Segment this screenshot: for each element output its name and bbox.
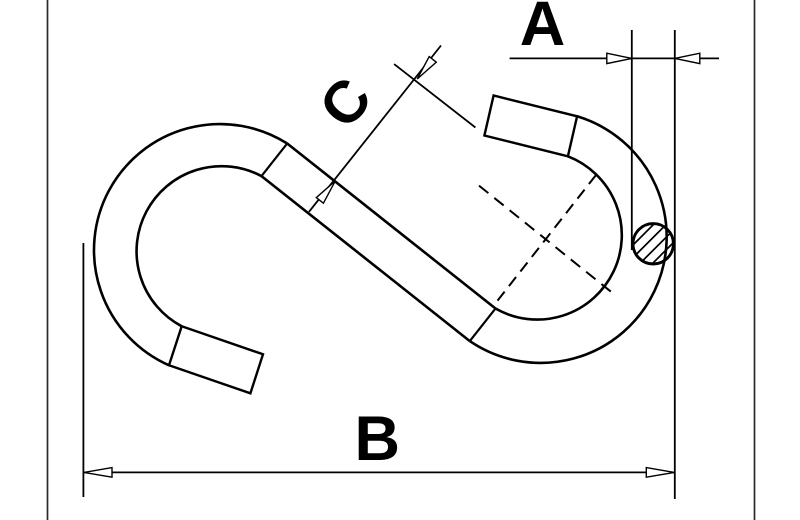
svg-text:B: B: [355, 404, 401, 474]
svg-text:A: A: [520, 0, 566, 59]
